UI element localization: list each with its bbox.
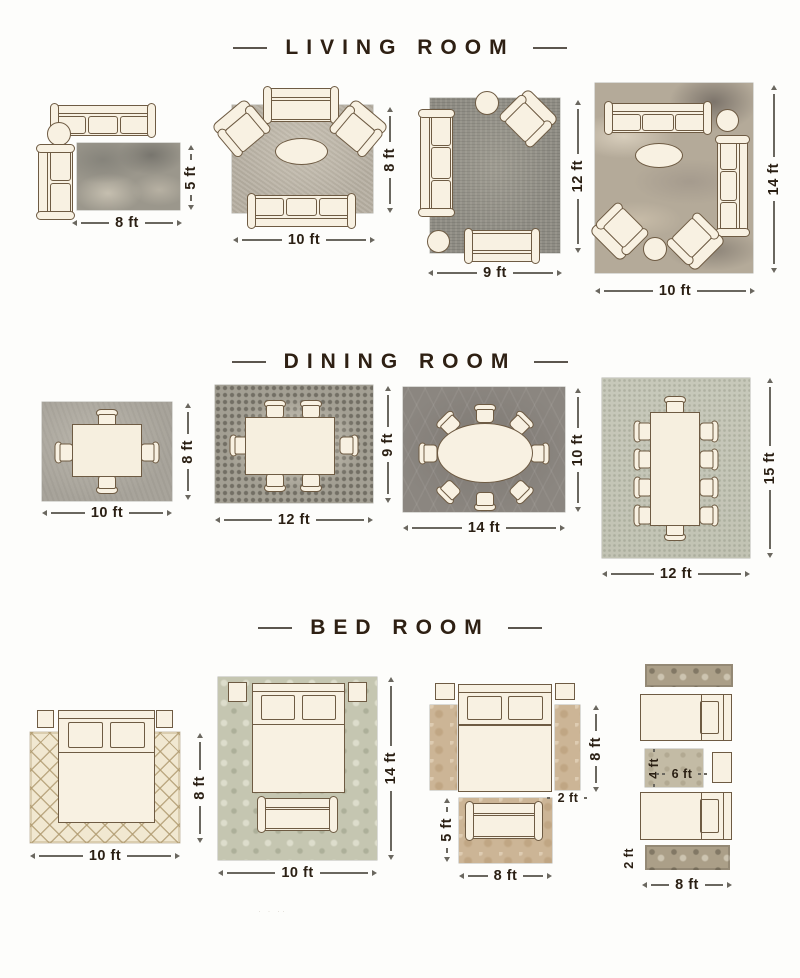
layout-living-10x14: 14 ft 10 ft [585,70,795,308]
oval-dining-table-icon [437,423,533,483]
runner-rug [430,705,457,790]
dining-chair-icon [531,443,550,465]
layout-dining-14x10: 10 ft 14 ft [398,378,593,540]
runner-rug [645,845,730,870]
watermark: · · ·· [258,906,287,916]
height-dimension: 14 ft [383,677,399,860]
dining-chair-icon [141,442,160,464]
runner-width-label: 2 ft [556,791,581,805]
nightstand-icon [435,683,455,700]
height-label: 12 ft [570,158,586,194]
area-rug [77,143,180,210]
layout-bed-8x5-runners: 8 ft 2 ft 5 ft 8 ft [425,655,620,890]
width-dimension: 8 ft [72,215,182,231]
dining-chair-icon [700,421,719,443]
height-dimension: 5 ft [183,145,199,210]
width-dimension: 10 ft [30,848,180,864]
runner-height-dimension: 2 ft [622,842,636,873]
dining-chair-icon [96,475,118,494]
title-rule-right [534,361,568,363]
bed-icon [458,684,552,792]
sofa-icon [420,112,453,214]
section-title-living-room: LIVING ROOM [0,36,800,60]
round-side-table-icon [716,109,739,132]
section-title-text: BED ROOM [310,616,490,640]
height-dimension: 8 ft [192,733,208,843]
width-dimension: 10 ft [595,283,755,299]
width-label: 10 ft [286,232,322,248]
nightstand-icon [156,710,173,728]
round-side-table-icon [475,91,499,115]
layout-dining-10x8: 8 ft 10 ft [25,395,210,525]
width-label: 10 ft [87,848,123,864]
height-label: 8 ft [588,735,604,763]
height-dimension: 15 ft [762,378,778,558]
dining-chair-icon [300,473,322,492]
rug-size-guide: LIVING ROOM 5 ft 8 ft 8 ft 10 ft 12 ft 9… [0,0,800,978]
sofa-icon [607,103,709,133]
runner-height-dimension: 8 ft [588,705,604,792]
width-label: 9 ft [481,265,509,281]
layout-living-8x5: 5 ft 8 ft [20,85,210,235]
dining-chair-icon [700,505,719,527]
section-title-bed-room: BED ROOM [0,616,800,640]
nightstand-icon [348,682,367,702]
height-label: 5 ft [183,164,199,192]
dining-chair-icon [474,404,496,423]
layout-bed-10x8: 8 ft 10 ft [15,695,215,870]
width-dimension: 14 ft [403,520,565,536]
bench-icon [260,798,335,831]
width-dimension: 12 ft [602,566,750,582]
oval-coffee-table-icon [635,143,683,168]
sofa-icon [250,195,353,227]
width-label: 8 ft [492,868,520,884]
twin-bed-icon [640,694,732,741]
foot-rug-height-label: 5 ft [439,816,455,844]
dining-chair-icon [340,435,359,457]
runner-height-label: 2 ft [622,846,636,871]
loveseat-icon [467,230,537,262]
dining-chair-icon [419,443,438,465]
width-label: 8 ft [673,877,701,893]
width-label: 10 ft [89,505,125,521]
dining-table-icon [72,424,142,477]
dining-chair-icon [264,473,286,492]
bed-icon [252,683,345,793]
width-dimension: 9 ft [428,265,562,281]
width-dimension: 10 ft [42,505,172,521]
loveseat-icon [266,88,336,122]
width-dimension: 8 ft [642,877,732,893]
runner-rug [555,705,580,790]
dining-chair-icon [700,477,719,499]
width-label: 8 ft [113,215,141,231]
width-label: 14 ft [466,520,502,536]
height-label: 8 ft [180,438,196,466]
width-dimension: 10 ft [218,865,377,881]
height-label: 14 ft [766,161,782,197]
width-label: 12 ft [276,512,312,528]
round-side-table-icon [643,237,667,261]
layout-dining-12x15: 15 ft 12 ft [595,370,795,585]
layout-living-10x8: 8 ft 10 ft [215,85,400,250]
dining-table-icon [245,417,335,475]
nightstand-icon [37,710,54,728]
width-dimension: 12 ft [215,512,373,528]
height-dimension: 12 ft [570,100,586,253]
dining-chair-icon [55,442,74,464]
nightstand-icon [712,752,732,783]
sofa-icon [717,138,748,234]
height-label: 10 ft [570,432,586,468]
height-dimension: 8 ft [180,403,196,500]
height-label: 14 ft [383,750,399,786]
dining-chair-icon [474,492,496,511]
layout-twin-beds-runners: 4 ft 6 ft 2 ft 8 ft [618,650,798,898]
title-rule-right [508,627,542,629]
layout-dining-12x9: 9 ft 12 ft [210,378,405,533]
layout-bed-10x14: 14 ft 10 ft [195,655,405,887]
nightstand-icon [555,683,575,700]
height-label: 8 ft [382,146,398,174]
middle-rug-width-label: 6 ft [670,767,695,781]
height-dimension: 8 ft [382,107,398,213]
round-side-table-icon [47,122,71,146]
height-dimension: 9 ft [380,386,396,503]
layout-living-9x12: 12 ft 9 ft [410,78,600,288]
foot-rug-height-dimension: 5 ft [439,798,455,862]
title-rule-right [533,47,567,49]
height-dimension: 14 ft [766,85,782,273]
runner-width-dimension: 2 ft [547,791,589,805]
height-label: 15 ft [762,450,778,486]
middle-rug-width-dimension: 6 ft [656,767,708,781]
twin-bed-icon [640,792,732,840]
height-label: 9 ft [380,431,396,459]
section-title-text: DINING ROOM [284,350,517,374]
runner-rug [645,664,733,687]
round-side-table-icon [427,230,450,253]
width-label: 10 ft [279,865,315,881]
title-rule-left [258,627,292,629]
bench-icon [468,803,540,839]
bed-icon [58,710,155,823]
dining-table-icon [650,412,700,526]
height-dimension: 10 ft [570,388,586,512]
nightstand-icon [228,682,247,702]
width-label: 10 ft [657,283,693,299]
title-rule-left [233,47,267,49]
width-dimension: 10 ft [233,232,375,248]
height-label: 8 ft [192,774,208,802]
width-label: 12 ft [658,566,694,582]
section-title-text: LIVING ROOM [285,36,514,60]
oval-coffee-table-icon [275,138,328,165]
loveseat-icon [38,147,73,217]
dining-chair-icon [700,449,719,471]
title-rule-left [232,361,266,363]
width-dimension: 8 ft [459,868,552,884]
